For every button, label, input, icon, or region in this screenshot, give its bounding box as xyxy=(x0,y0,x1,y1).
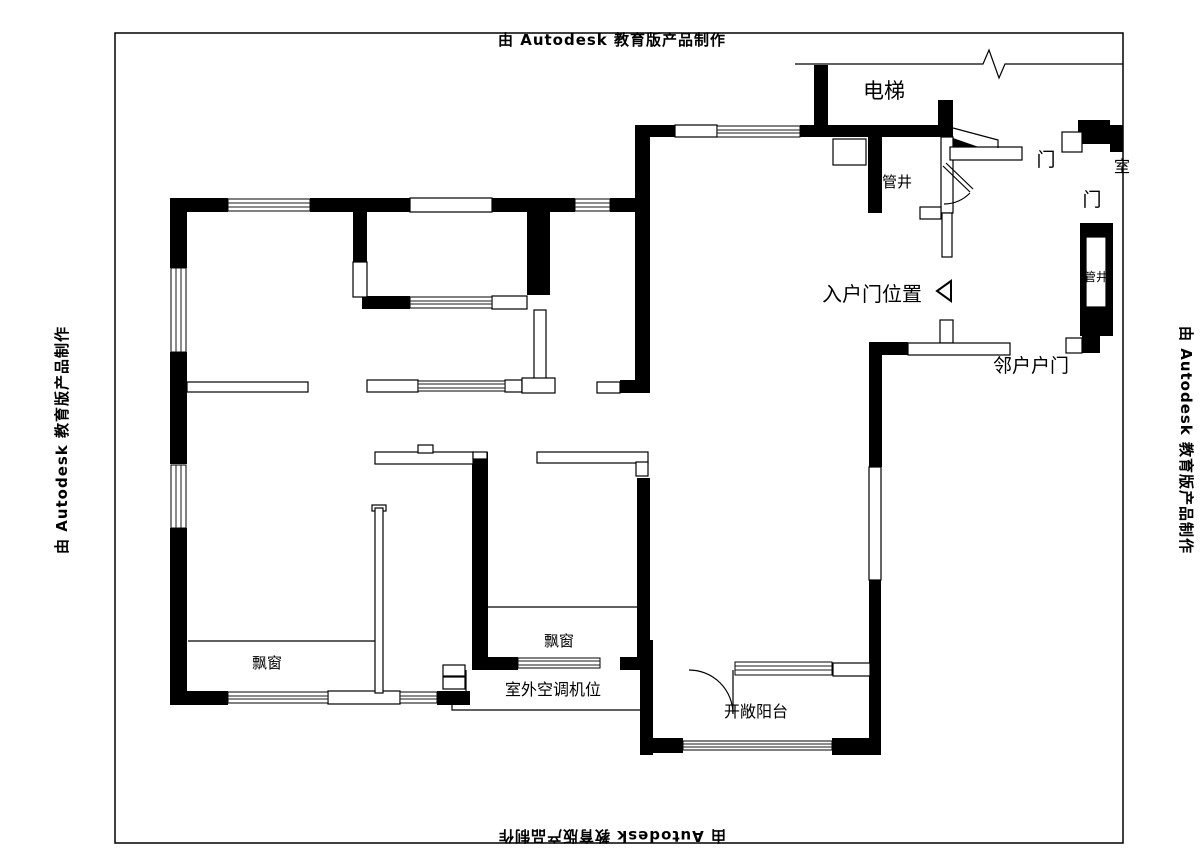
clipped-room-label: 室 xyxy=(1114,157,1130,176)
watermarks: 由 Autodesk 教育版产品制作 由 Autodesk 教育版产品制作 由 … xyxy=(53,31,1195,845)
plan-labels: 电梯 管井 门 门 室 管井 入户门位置 邻户户门 飘窗 飘窗 室外空调机位 开… xyxy=(252,79,1130,721)
outdoor-ac-unit-label: 室外空调机位 xyxy=(505,680,601,699)
bay-window-middle-label: 飘窗 xyxy=(544,632,574,650)
watermark-bottom: 由 Autodesk 教育版产品制作 xyxy=(498,827,726,845)
floor-plan-drawing: 电梯 管井 门 门 室 管井 入户门位置 邻户户门 飘窗 飘窗 室外空调机位 开… xyxy=(0,0,1200,848)
door-top-label: 门 xyxy=(1036,149,1055,171)
entry-direction-marker xyxy=(937,281,951,301)
open-balcony-label: 开敞阳台 xyxy=(724,702,788,721)
watermark-right: 由 Autodesk 教育版产品制作 xyxy=(1177,326,1195,554)
watermark-top: 由 Autodesk 教育版产品制作 xyxy=(498,31,726,49)
pipe-shaft-right-label: 管井 xyxy=(1084,269,1108,284)
pipe-shaft-top-label: 管井 xyxy=(882,173,912,191)
entry-door-position-label: 入户门位置 xyxy=(822,282,922,306)
door-right-label: 门 xyxy=(1082,189,1101,211)
bay-window-left-label: 飘窗 xyxy=(252,654,282,672)
walls-black xyxy=(170,65,1123,755)
corridor-break-line xyxy=(795,50,1123,78)
watermark-left: 由 Autodesk 教育版产品制作 xyxy=(53,326,71,554)
elevator-label: 电梯 xyxy=(863,79,905,103)
neighbor-entry-door-label: 邻户户门 xyxy=(993,355,1069,377)
floor-plan-page: 电梯 管井 门 门 室 管井 入户门位置 邻户户门 飘窗 飘窗 室外空调机位 开… xyxy=(0,0,1200,848)
